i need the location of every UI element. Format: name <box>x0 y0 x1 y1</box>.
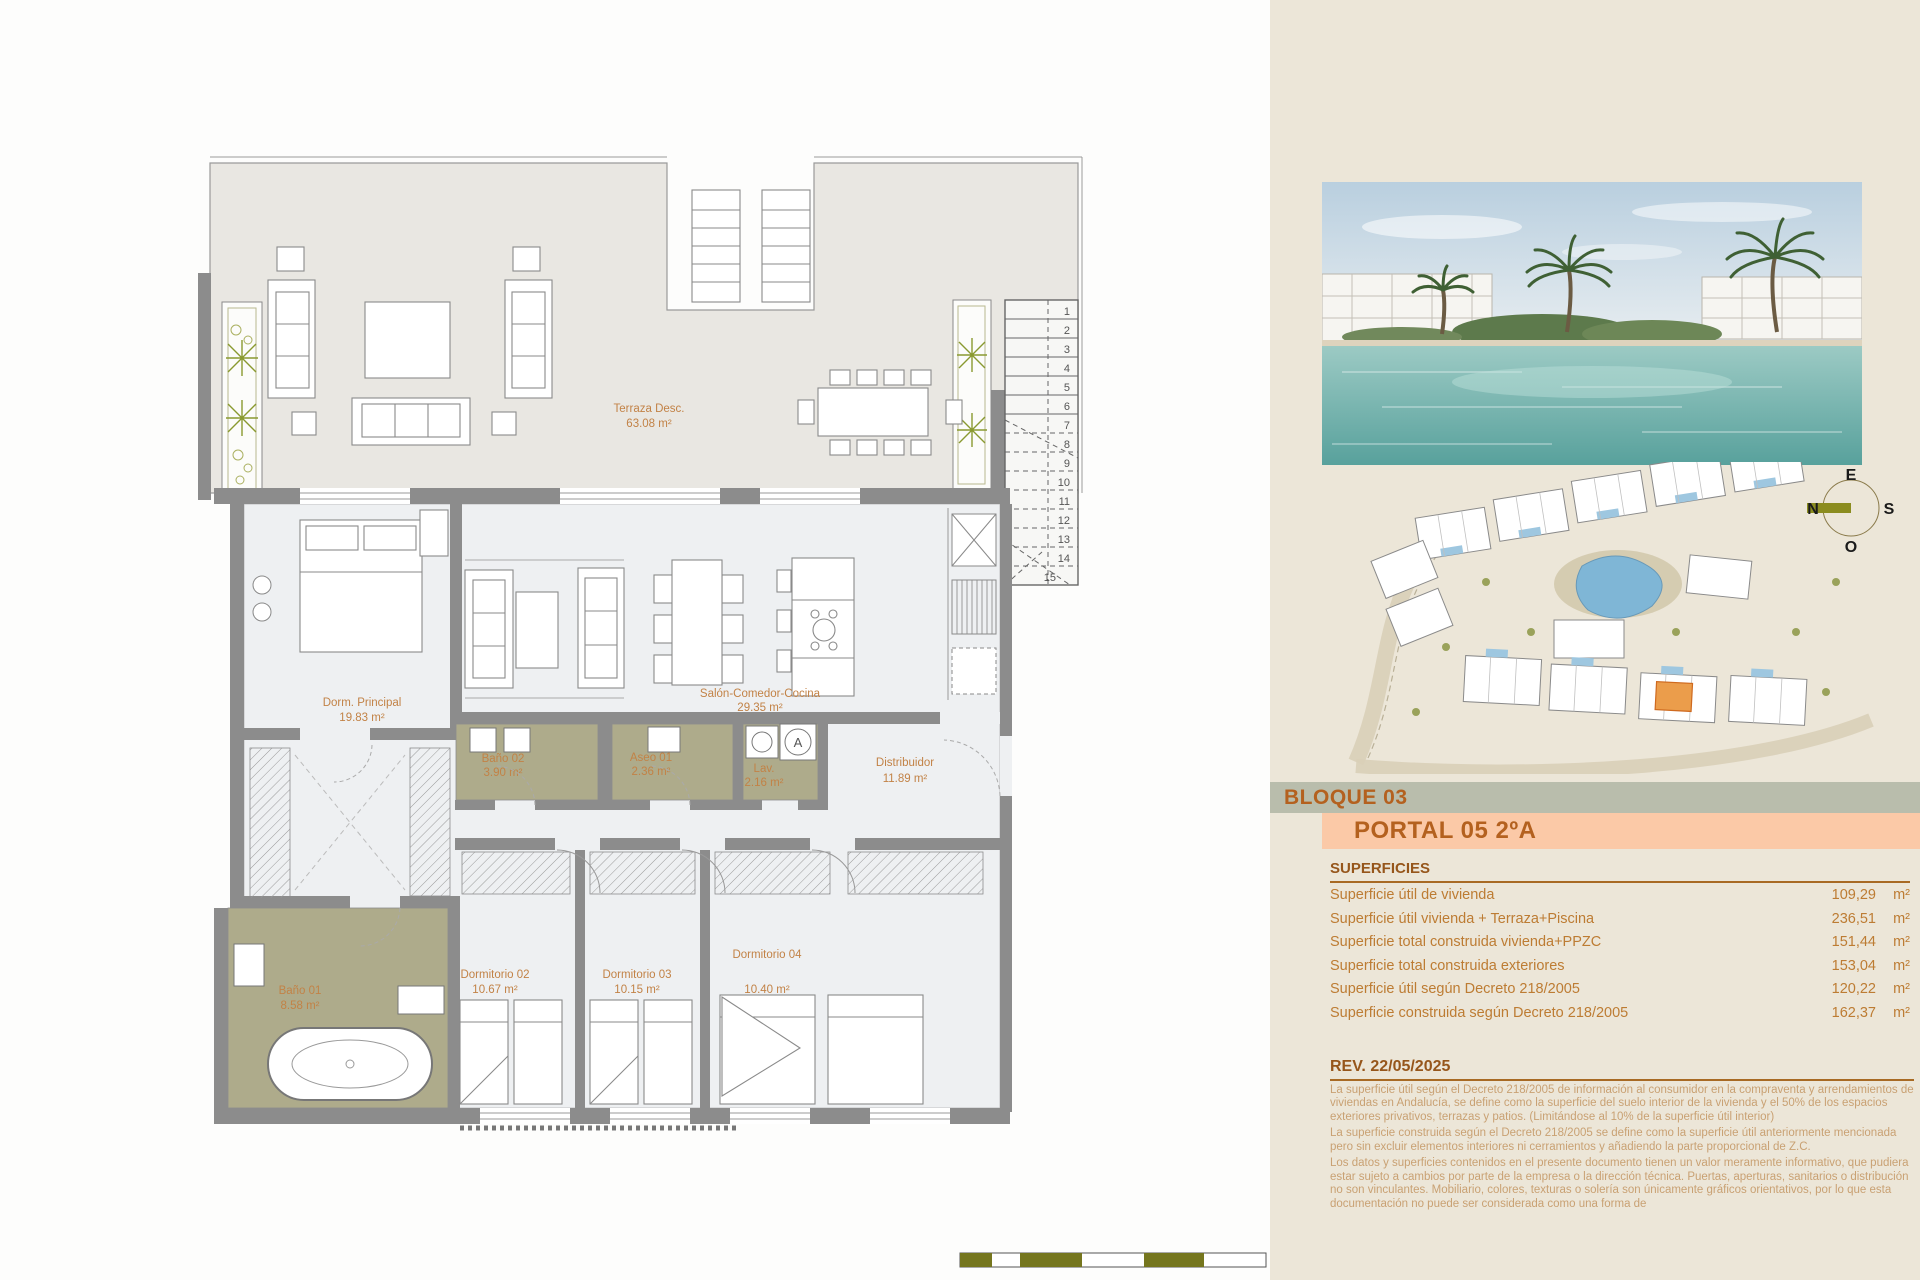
row-label: Superficie construida según Decreto 218/… <box>1330 1002 1816 1026</box>
row-unit: m² <box>1876 884 1910 908</box>
row-value: 151,44 <box>1816 931 1876 955</box>
row-unit: m² <box>1876 931 1910 955</box>
planter-right <box>953 300 991 490</box>
stair-number: 1 <box>1064 306 1070 318</box>
superficies-row: Superficie útil según Decreto 218/2005 1… <box>1330 978 1910 1002</box>
stair-number: 14 <box>1058 553 1070 565</box>
row-unit: m² <box>1876 955 1910 979</box>
bloque-label: BLOQUE 03 <box>1284 786 1408 810</box>
kitchen-counter <box>948 508 996 700</box>
room-label-salon: Salón-Comedor-Cocina <box>700 688 821 700</box>
terrace: Terraza Desc. 63.08 m² <box>198 157 1082 500</box>
room-label-distribuidor: Distribuidor <box>876 757 934 769</box>
legal-paragraph: La superficie construida según el Decret… <box>1330 1127 1914 1154</box>
stair-number: 7 <box>1064 420 1070 432</box>
room-label-lav: Lav. <box>754 763 775 775</box>
superficies-row: Superficie construida según Decreto 218/… <box>1330 1002 1910 1026</box>
superficies-table: SUPERFICIES Superficie útil de vivienda … <box>1330 860 1910 1025</box>
row-value: 162,37 <box>1816 1002 1876 1026</box>
room-area-bano01: 8.58 m² <box>281 1000 320 1012</box>
room-label-dormitorio02: Dormitorio 02 <box>460 969 529 981</box>
room-aseo01: Aseo 01 2.36 m² <box>612 724 733 805</box>
stair-number: 13 <box>1058 534 1070 546</box>
room-area-salon: 29.35 m² <box>737 702 783 714</box>
facade-wall <box>214 488 1010 504</box>
bloque-header: BLOQUE 03 <box>1270 782 1920 813</box>
revision-heading: REV. 22/05/2025 <box>1330 1058 1914 1081</box>
room-lavadero: A Lav. 2.16 m² <box>743 724 818 800</box>
row-label: Superficie total construida vivienda+PPZ… <box>1330 931 1816 955</box>
superficies-heading: SUPERFICIES <box>1330 860 1910 883</box>
stair-number: 11 <box>1059 496 1070 508</box>
room-label-dormitorio03: Dormitorio 03 <box>602 969 671 981</box>
room-label-aseo01: Aseo 01 <box>630 752 672 764</box>
stair-number: 9 <box>1064 458 1070 470</box>
room-area-dormitorio03: 10.15 m² <box>614 984 660 996</box>
room-area-terraza: 63.08 m² <box>626 418 672 430</box>
stair-number: 12 <box>1058 515 1070 527</box>
row-unit: m² <box>1876 978 1910 1002</box>
compass-south: S <box>1884 501 1895 518</box>
stair-number: 4 <box>1064 363 1070 375</box>
planter-left <box>222 302 262 495</box>
washer-letter: A <box>794 735 803 750</box>
superficies-row: Superficie útil vivienda + Terraza+Pisci… <box>1330 908 1910 932</box>
stair-number: 5 <box>1064 382 1070 394</box>
row-value: 153,04 <box>1816 955 1876 979</box>
sun-loungers <box>692 190 810 302</box>
row-value: 120,22 <box>1816 978 1876 1002</box>
stair-number: 15 <box>1044 572 1056 584</box>
room-bano01: Baño 01 8.58 m² <box>228 908 448 1108</box>
row-label: Superficie útil de vivienda <box>1330 884 1816 908</box>
row-unit: m² <box>1876 908 1910 932</box>
room-label-dormitorio04: Dormitorio 04 <box>732 949 802 961</box>
staircase: 1 2 3 4 5 6 7 8 9 10 11 12 13 14 15 <box>1005 300 1078 585</box>
stair-number: 8 <box>1064 439 1070 451</box>
room-label-terraza: Terraza Desc. <box>614 403 685 415</box>
legal-paragraph: Los datos y superficies contenidos en el… <box>1330 1157 1914 1211</box>
row-label: Superficie útil vivienda + Terraza+Pisci… <box>1330 908 1816 932</box>
stair-number: 3 <box>1064 344 1070 356</box>
row-unit: m² <box>1876 1002 1910 1026</box>
room-label-bano01: Baño 01 <box>279 985 322 997</box>
row-label: Superficie útil según Decreto 218/2005 <box>1330 978 1816 1002</box>
stair-number: 6 <box>1064 401 1070 413</box>
row-label: Superficie total construida exteriores <box>1330 955 1816 979</box>
row-value: 109,29 <box>1816 884 1876 908</box>
plan-sheet: Terraza Desc. 63.08 m² 1 2 3 4 5 6 7 8 <box>0 0 1920 1280</box>
portal-label: PORTAL 05 2ºA <box>1354 817 1536 845</box>
superficies-row: Superficie total construida exteriores 1… <box>1330 955 1910 979</box>
revision-block: REV. 22/05/2025 La superficie útil según… <box>1330 1058 1914 1214</box>
room-area-distribuidor: 11.89 m² <box>883 773 928 785</box>
site-plan <box>1326 462 1874 774</box>
superficies-row: Superficie útil de vivienda 109,29 m² <box>1330 884 1910 908</box>
floor-plan: Terraza Desc. 63.08 m² 1 2 3 4 5 6 7 8 <box>0 0 1270 1280</box>
room-area-aseo01: 2.36 m² <box>632 766 671 778</box>
stair-number: 10 <box>1058 477 1070 489</box>
highlighted-bloque-03 <box>1655 682 1692 712</box>
room-area-lav: 2.16 m² <box>745 777 784 789</box>
row-value: 236,51 <box>1816 908 1876 932</box>
superficies-row: Superficie total construida vivienda+PPZ… <box>1330 931 1910 955</box>
scale-bar: 0 0.5 1 2 3 4 5 <box>956 1253 1270 1280</box>
legal-paragraph: La superficie útil según el Decreto 218/… <box>1330 1084 1914 1124</box>
room-area-dormitorio04: 10.40 m² <box>744 984 790 996</box>
floor-plan-area: Terraza Desc. 63.08 m² 1 2 3 4 5 6 7 8 <box>0 0 1270 1280</box>
room-label-bano02: Baño 02 <box>482 753 525 765</box>
portal-header: PORTAL 05 2ºA <box>1322 813 1920 849</box>
stair-number: 2 <box>1064 325 1070 337</box>
room-area-dorm-principal: 19.83 m² <box>339 712 385 724</box>
room-label-dorm-principal: Dorm. Principal <box>323 697 402 709</box>
room-bano02: Baño 02 3.90 m² <box>456 724 598 805</box>
info-panel: E S O N <box>1270 0 1920 1280</box>
exterior-render-photo <box>1322 182 1862 465</box>
room-area-bano02: 3.90 m² <box>484 767 523 779</box>
bedroom-wardrobes <box>462 852 983 894</box>
room-area-dormitorio02: 10.67 m² <box>472 984 518 996</box>
